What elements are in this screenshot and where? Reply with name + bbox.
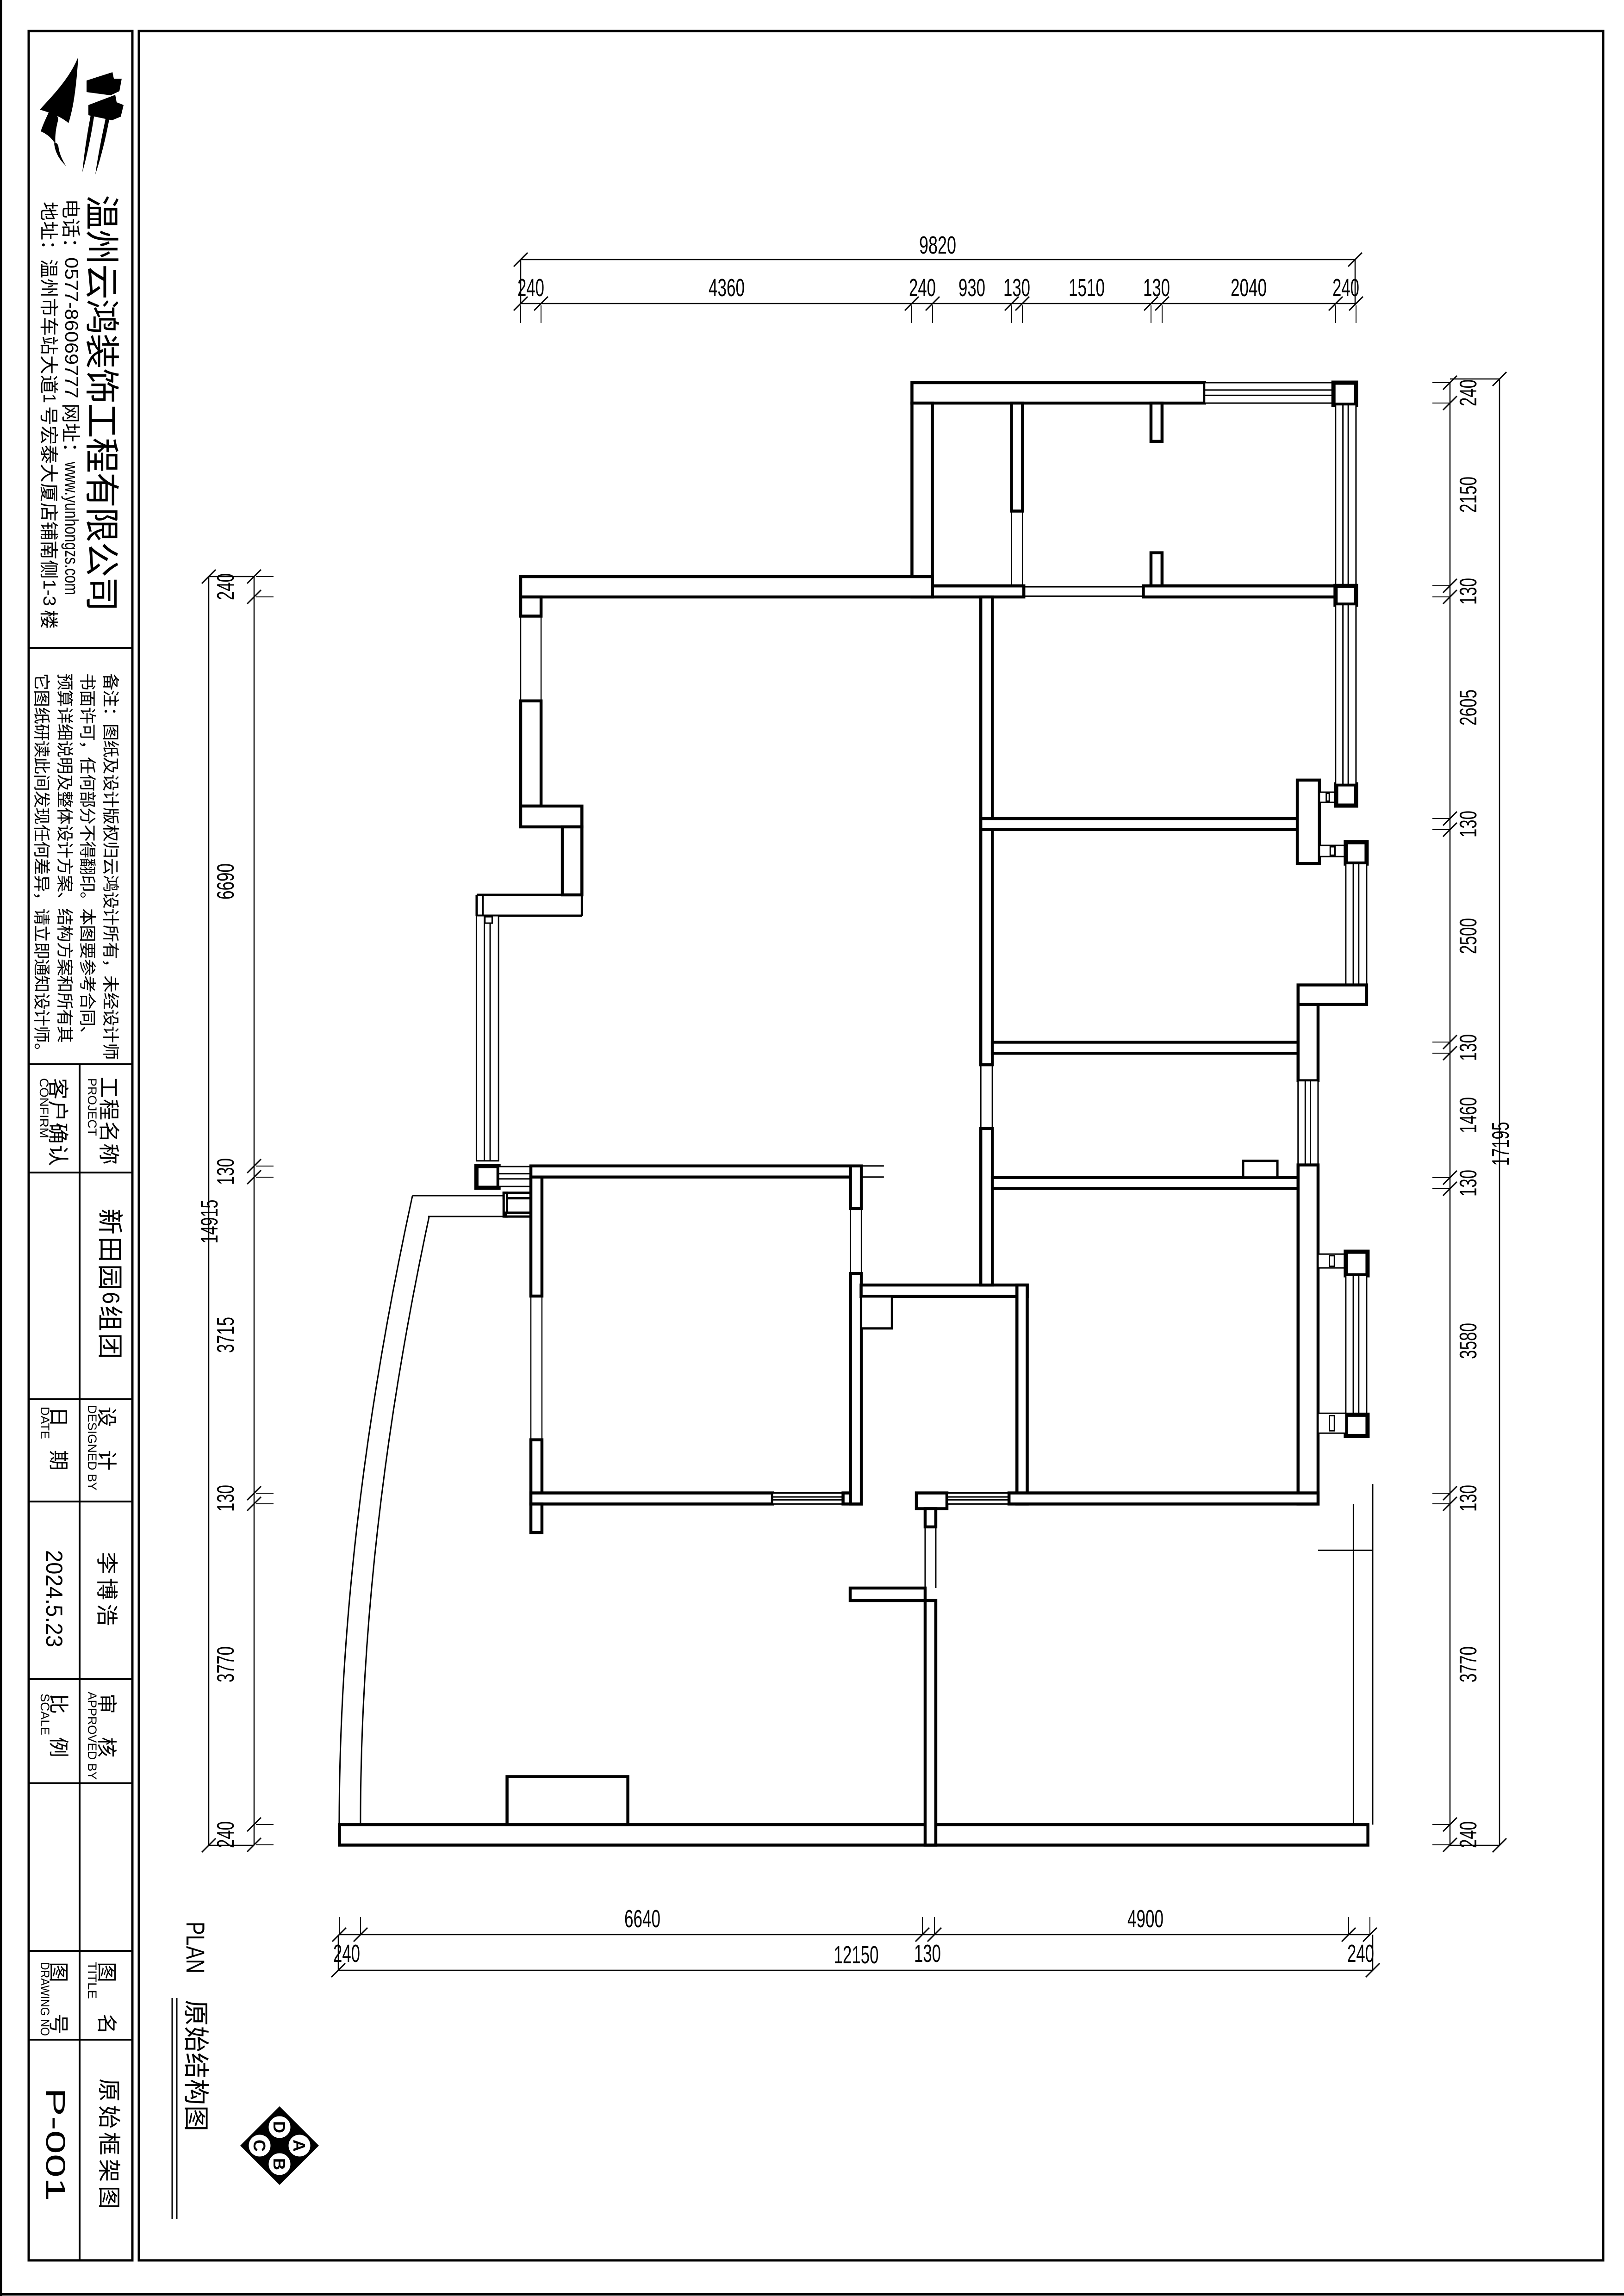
svg-text:130: 130: [1455, 1034, 1482, 1061]
svg-text:CONFIRM: CONFIRM: [37, 1078, 51, 1138]
svg-text:6: 6: [97, 1292, 124, 1304]
svg-text:130: 130: [1455, 578, 1482, 605]
svg-text:240: 240: [212, 573, 239, 600]
svg-text:4900: 4900: [1127, 1905, 1164, 1933]
svg-text:12150: 12150: [834, 1941, 879, 1969]
svg-text:APPROVED BY: APPROVED BY: [85, 1692, 99, 1780]
svg-text:240: 240: [212, 1821, 239, 1848]
svg-text:SCALE: SCALE: [38, 1694, 52, 1735]
svg-text:130: 130: [212, 1485, 239, 1512]
svg-text:240: 240: [1347, 1940, 1374, 1967]
svg-text:3580: 3580: [1455, 1323, 1482, 1359]
svg-text:www.yunhongzs.com: www.yunhongzs.com: [61, 461, 81, 595]
svg-text:2605: 2605: [1455, 689, 1482, 726]
svg-text:TITLE: TITLE: [85, 1962, 99, 1999]
svg-text:PROJECT: PROJECT: [85, 1078, 99, 1136]
svg-text:130: 130: [1455, 1170, 1482, 1197]
svg-text:17195: 17195: [1487, 1122, 1514, 1166]
svg-text:PLAN: PLAN: [181, 1922, 210, 1973]
svg-text:2500: 2500: [1455, 918, 1482, 954]
svg-text:3715: 3715: [212, 1317, 239, 1353]
svg-text:130: 130: [914, 1940, 941, 1967]
svg-text:DATE: DATE: [38, 1407, 52, 1439]
svg-text:B: B: [270, 2158, 289, 2170]
svg-text:9820: 9820: [919, 231, 956, 259]
svg-text:DRAWING NO: DRAWING NO: [38, 1962, 52, 2036]
svg-text:P-001: P-001: [40, 2088, 70, 2201]
svg-text:6690: 6690: [212, 863, 239, 900]
svg-text:240: 240: [909, 274, 936, 302]
svg-text:130: 130: [1455, 1485, 1482, 1512]
svg-text:130: 130: [1455, 811, 1482, 838]
svg-text:0577-86069777: 0577-86069777: [61, 257, 81, 398]
svg-text:130: 130: [1003, 274, 1030, 302]
svg-text:D: D: [270, 2121, 289, 2133]
svg-text:2150: 2150: [1455, 477, 1482, 513]
svg-text:930: 930: [958, 274, 985, 302]
svg-text:1460: 1460: [1455, 1097, 1482, 1133]
svg-text:130: 130: [1143, 274, 1170, 302]
svg-text:A: A: [290, 2140, 309, 2152]
svg-text:6640: 6640: [624, 1905, 660, 1933]
svg-text:C: C: [250, 2140, 269, 2152]
svg-text:240: 240: [333, 1940, 360, 1967]
svg-text:130: 130: [212, 1158, 239, 1185]
svg-text:3770: 3770: [212, 1646, 239, 1682]
svg-text:240: 240: [1455, 1821, 1482, 1848]
svg-text:240: 240: [1332, 274, 1359, 302]
svg-text:4360: 4360: [709, 274, 745, 302]
svg-text:240: 240: [517, 274, 544, 302]
svg-text:1: 1: [39, 394, 59, 403]
svg-text:240: 240: [1455, 379, 1482, 406]
svg-text:3770: 3770: [1455, 1646, 1482, 1682]
svg-text:14915: 14915: [196, 1200, 223, 1244]
svg-text:2040: 2040: [1231, 274, 1267, 302]
svg-text:1-3: 1-3: [39, 579, 59, 606]
svg-text:DESIGNED BY: DESIGNED BY: [85, 1405, 99, 1490]
svg-text:2024.5.23: 2024.5.23: [41, 1550, 67, 1647]
svg-text:1510: 1510: [1069, 274, 1105, 302]
